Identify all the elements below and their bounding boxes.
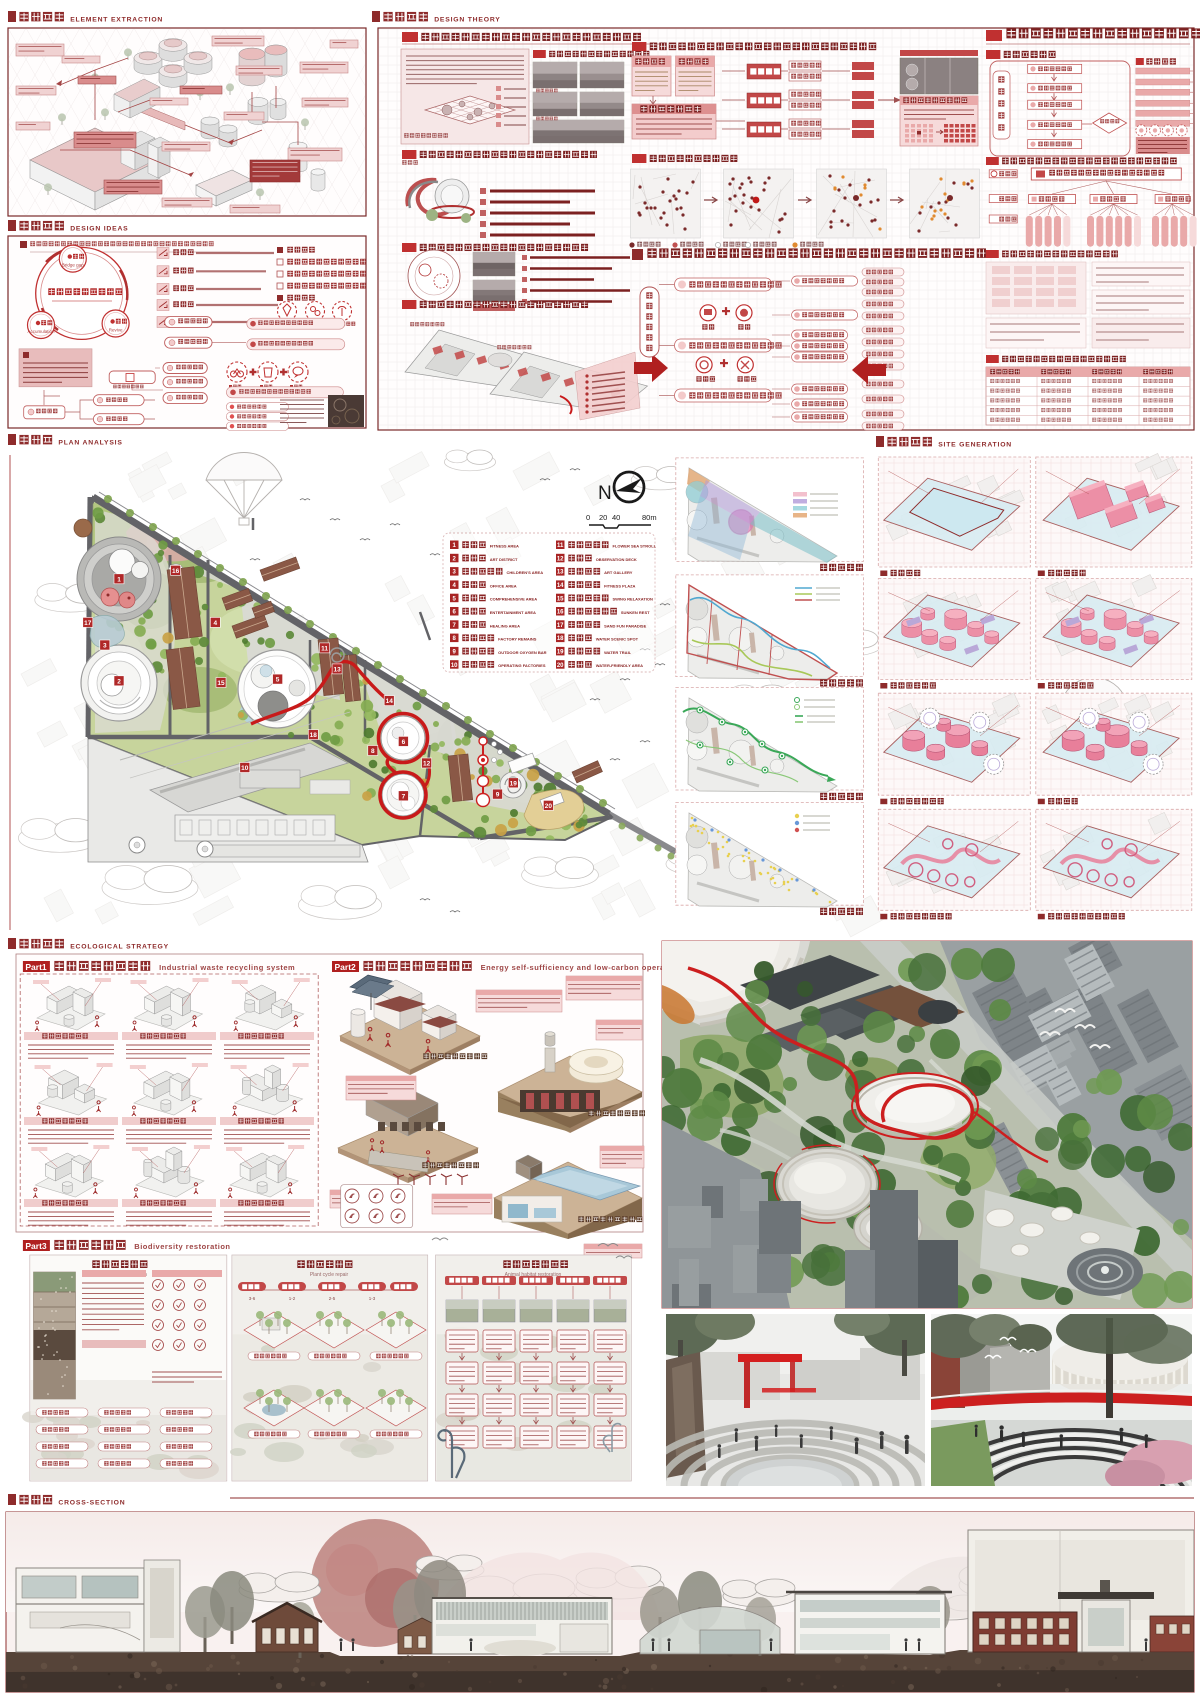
svg-text:SITE GENERATION: SITE GENERATION <box>938 442 1012 449</box>
svg-text:PLAN ANALYSIS: PLAN ANALYSIS <box>58 440 122 447</box>
svg-text:WATER TRAIL: WATER TRAIL <box>604 650 632 655</box>
svg-text:Part3: Part3 <box>25 1241 47 1251</box>
svg-text:40: 40 <box>612 513 620 522</box>
svg-text:COMPREHENSIVE AREA: COMPREHENSIVE AREA <box>490 597 538 602</box>
svg-text:Part1: Part1 <box>25 962 47 972</box>
svg-text:7: 7 <box>402 793 406 800</box>
svg-text:Plant cycle repair: Plant cycle repair <box>310 1272 349 1278</box>
svg-text:19: 19 <box>557 650 564 656</box>
svg-text:CHILDREN'S AREA: CHILDREN'S AREA <box>507 570 544 575</box>
svg-text:Revive: Revive <box>109 328 123 333</box>
svg-text:13: 13 <box>333 666 341 673</box>
svg-text:12: 12 <box>557 556 564 562</box>
svg-text:OUTDOOR OXYGEN BAR: OUTDOOR OXYGEN BAR <box>498 650 547 655</box>
svg-text:17: 17 <box>84 620 92 627</box>
svg-text:20: 20 <box>599 513 607 522</box>
svg-text:80m: 80m <box>642 513 657 522</box>
svg-text:Accumulation: Accumulation <box>27 329 55 334</box>
svg-text:1-3: 1-3 <box>369 1296 376 1301</box>
svg-text:17: 17 <box>557 623 564 629</box>
svg-text:Industrial waste recycling sys: Industrial waste recycling system <box>159 963 295 972</box>
svg-text:14: 14 <box>386 698 394 705</box>
svg-text:DESIGN IDEAS: DESIGN IDEAS <box>70 226 128 233</box>
svg-text:OBSERVATION DECK: OBSERVATION DECK <box>596 557 637 562</box>
svg-text:CROSS-SECTION: CROSS-SECTION <box>58 1500 125 1507</box>
svg-text:2-5: 2-5 <box>329 1296 336 1301</box>
svg-text:15: 15 <box>217 680 225 687</box>
svg-text:20: 20 <box>557 663 564 669</box>
svg-text:0: 0 <box>586 513 590 522</box>
svg-text:ENTERTAINMENT AREA: ENTERTAINMENT AREA <box>490 610 536 615</box>
svg-text:10: 10 <box>451 663 458 669</box>
svg-text:Bridge gap: Bridge gap <box>62 263 84 268</box>
svg-text:FLOWER SEA STROLL: FLOWER SEA STROLL <box>613 544 657 549</box>
svg-text:5: 5 <box>276 677 280 684</box>
svg-text:ELEMENT EXTRACTION: ELEMENT EXTRACTION <box>70 17 163 24</box>
svg-text:9: 9 <box>496 792 500 799</box>
svg-text:16: 16 <box>172 568 180 575</box>
svg-text:Energy self-sufficiency and lo: Energy self-sufficiency and low-carbon o… <box>481 963 686 972</box>
svg-text:20: 20 <box>545 803 553 810</box>
svg-text:1: 1 <box>117 576 121 583</box>
svg-text:1-2: 1-2 <box>289 1296 296 1301</box>
svg-text:FACTORY REMAINS: FACTORY REMAINS <box>498 637 537 642</box>
svg-text:OPERATING FACTORIES: OPERATING FACTORIES <box>498 663 546 668</box>
svg-text:10: 10 <box>241 765 249 772</box>
svg-text:12: 12 <box>423 761 431 768</box>
svg-text:SAND FUN PARADISE: SAND FUN PARADISE <box>604 623 646 628</box>
svg-text:SWING RELAXATION: SWING RELAXATION <box>613 597 653 602</box>
svg-text:18: 18 <box>557 636 564 642</box>
svg-text:4: 4 <box>213 620 217 627</box>
svg-text:FITNESS PLAZA: FITNESS PLAZA <box>604 583 635 588</box>
svg-text:ECOLOGICAL STRATEGY: ECOLOGICAL STRATEGY <box>70 944 169 951</box>
svg-text:Part2: Part2 <box>335 962 357 972</box>
svg-text:15: 15 <box>557 596 564 602</box>
svg-text:FITNESS AREA: FITNESS AREA <box>490 544 519 549</box>
svg-text:SUNKEN REST: SUNKEN REST <box>621 610 650 615</box>
svg-text:8: 8 <box>371 748 375 755</box>
svg-text:14: 14 <box>557 583 564 589</box>
svg-text:2: 2 <box>117 678 121 685</box>
svg-text:Biodiversity restoration: Biodiversity restoration <box>134 1242 230 1251</box>
svg-text:6: 6 <box>402 739 406 746</box>
svg-text:18: 18 <box>310 732 318 739</box>
svg-text:WATER SCENIC SPOT: WATER SCENIC SPOT <box>596 637 639 642</box>
svg-text:HEALING AREA: HEALING AREA <box>490 623 520 628</box>
svg-text:11: 11 <box>557 543 564 549</box>
svg-text:13: 13 <box>557 570 564 576</box>
svg-text:N: N <box>598 483 612 504</box>
svg-text:DESIGN THEORY: DESIGN THEORY <box>434 17 500 24</box>
svg-text:WATER-FRIENDLY AREA: WATER-FRIENDLY AREA <box>596 663 643 668</box>
svg-text:11: 11 <box>321 645 328 652</box>
svg-text:19: 19 <box>510 780 518 787</box>
svg-text:3: 3 <box>103 643 107 650</box>
svg-text:OFFICE AREA: OFFICE AREA <box>490 583 517 588</box>
svg-text:ART DISTRICT: ART DISTRICT <box>490 557 518 562</box>
svg-text:ART GALLERY: ART GALLERY <box>604 570 633 575</box>
svg-text:16: 16 <box>557 610 564 616</box>
svg-text:3-6: 3-6 <box>249 1296 256 1301</box>
